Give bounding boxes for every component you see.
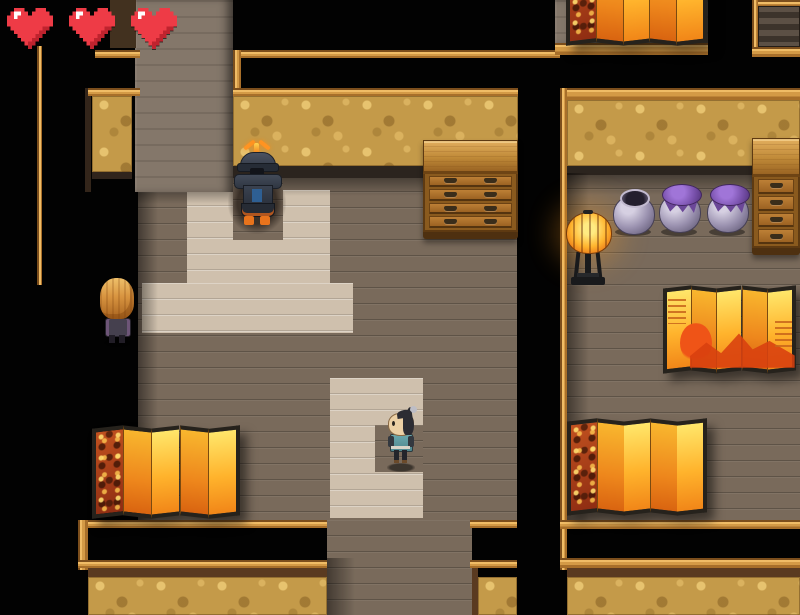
wall-trim xyxy=(560,88,800,100)
character-shadow xyxy=(387,463,415,472)
corridor-shadow xyxy=(327,558,355,615)
screen-panel xyxy=(649,0,677,46)
wall-trim xyxy=(88,88,140,96)
lantern-shade xyxy=(566,212,612,254)
drawer-handle-icon xyxy=(770,217,783,222)
screen-panel xyxy=(624,0,650,45)
pot-cloth-cap xyxy=(710,184,750,206)
dresser-drawer xyxy=(429,176,512,188)
drawer-handle-icon xyxy=(444,219,457,224)
topknot-villager[interactable] xyxy=(380,407,422,473)
platform-step-base[interactable] xyxy=(142,283,353,333)
screen-panel xyxy=(650,418,678,515)
screen-panel xyxy=(123,425,152,518)
screen-panel xyxy=(567,418,597,515)
bottom-mid-cork-wall xyxy=(478,577,517,615)
helmet-crest-icon xyxy=(258,139,271,150)
drawer-handle-icon xyxy=(770,234,783,239)
drawer-handle-icon xyxy=(484,192,497,197)
dresser-drawer xyxy=(758,196,794,211)
folding-screen[interactable] xyxy=(566,0,707,44)
dresser-top xyxy=(423,140,518,174)
drawer-handle-icon xyxy=(484,206,497,211)
wall-trim xyxy=(752,47,800,57)
npc-long-hair xyxy=(100,278,134,319)
wall-trim xyxy=(470,520,517,528)
bottom-right-cork-wall xyxy=(567,577,800,615)
pot-open[interactable] xyxy=(612,186,654,236)
pot-cloth-cap xyxy=(662,184,702,206)
wall-trim xyxy=(233,88,518,96)
screen-panel xyxy=(677,418,707,515)
screen-panel xyxy=(717,286,741,374)
pot-capped[interactable] xyxy=(658,184,705,236)
villager-sash xyxy=(391,446,410,449)
wall-trim xyxy=(233,50,560,58)
screen-panel xyxy=(663,285,691,373)
pot-capped[interactable] xyxy=(706,184,752,236)
folding-screen[interactable] xyxy=(663,287,796,372)
drawer-handle-icon xyxy=(770,200,783,205)
game-viewport xyxy=(0,0,800,615)
screen-panel xyxy=(92,425,123,519)
wall-trim xyxy=(470,560,517,568)
wall-base-line xyxy=(567,568,800,577)
screen-panel xyxy=(152,425,179,518)
folding-screen[interactable] xyxy=(92,427,240,517)
dresser-base xyxy=(423,232,518,239)
screen-panel xyxy=(180,425,209,518)
dresser-drawer xyxy=(758,229,794,244)
armor-boot xyxy=(260,216,270,225)
screen-panel xyxy=(768,285,796,373)
screen-panel xyxy=(742,286,768,374)
dresser-drawer xyxy=(429,203,512,215)
wall-trim xyxy=(78,560,327,568)
blonde-npc[interactable] xyxy=(96,276,138,349)
drawer-handle-icon xyxy=(484,219,497,224)
dark-alcove-shelf xyxy=(758,6,800,47)
dresser-top xyxy=(752,138,800,177)
lamp-base xyxy=(571,277,605,285)
wall-trim xyxy=(37,46,42,285)
screen-panel xyxy=(596,0,624,46)
dresser-drawer xyxy=(758,179,794,194)
villager-eye xyxy=(392,421,395,426)
character-shadow xyxy=(102,338,132,348)
villager-leg xyxy=(402,450,407,463)
screen-panel xyxy=(691,286,717,374)
drawer-handle-icon xyxy=(484,178,497,183)
wall-trim xyxy=(560,558,800,568)
npc-leg xyxy=(109,335,115,343)
screen-panel xyxy=(597,418,625,515)
dresser-base xyxy=(752,248,800,255)
wall-edge-dark xyxy=(85,88,91,192)
dresser-body xyxy=(423,174,518,232)
armor-skirt xyxy=(241,203,275,217)
drawer-handle-icon xyxy=(444,178,457,183)
armored-samurai-npc[interactable] xyxy=(227,142,287,239)
dresser-body xyxy=(752,177,800,248)
armor-belt xyxy=(252,189,262,202)
pot-mouth xyxy=(620,189,650,208)
wall-trim xyxy=(560,520,800,529)
screen-panel xyxy=(677,0,707,46)
drawer-handle-icon xyxy=(444,206,457,211)
wall-base-line xyxy=(88,568,327,577)
screen-panel xyxy=(624,419,650,516)
drawer-handle-icon xyxy=(444,192,457,197)
heart-icon xyxy=(69,8,115,49)
heart-icon xyxy=(7,8,53,49)
wall-trim xyxy=(560,88,567,570)
screen-panel xyxy=(209,425,240,519)
hearts-bar xyxy=(7,8,177,49)
wall-trim xyxy=(95,50,140,58)
lantern-cap xyxy=(583,210,593,214)
dresser-drawer xyxy=(429,189,512,201)
wall-base-line xyxy=(92,172,132,179)
armor-boot xyxy=(244,216,254,225)
drawer-handle-icon xyxy=(770,183,783,188)
wall-trim xyxy=(555,43,708,55)
bottom-left-cork-wall xyxy=(88,577,327,615)
floor-lamp[interactable] xyxy=(563,212,613,288)
dresser[interactable] xyxy=(752,138,800,255)
heart-icon xyxy=(131,8,177,49)
wall-trim xyxy=(78,520,327,528)
dresser-drawer xyxy=(429,216,512,228)
left-cork-panel xyxy=(92,96,132,172)
villager-leg xyxy=(394,450,399,463)
dresser-drawer xyxy=(758,213,794,228)
screen-panel xyxy=(566,0,596,46)
folding-screen[interactable] xyxy=(567,420,707,514)
dresser[interactable] xyxy=(423,140,518,239)
npc-leg xyxy=(119,335,125,343)
